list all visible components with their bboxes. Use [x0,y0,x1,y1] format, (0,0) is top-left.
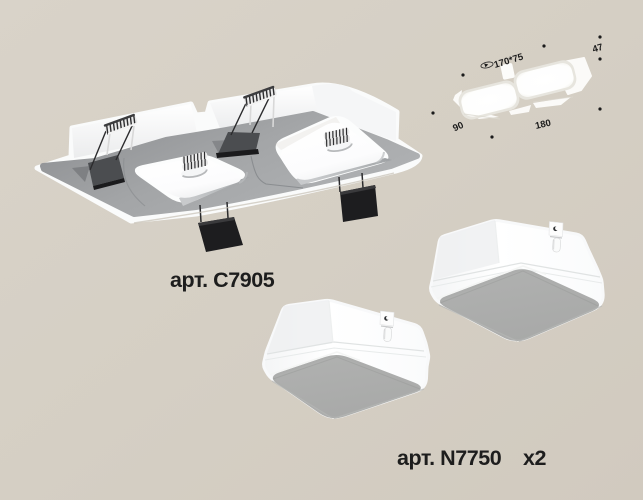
svg-text:арт. C7905: арт. C7905 [170,268,275,292]
svg-text:арт. N7750: арт. N7750 [397,446,502,470]
svg-text:x2: x2 [523,446,547,470]
